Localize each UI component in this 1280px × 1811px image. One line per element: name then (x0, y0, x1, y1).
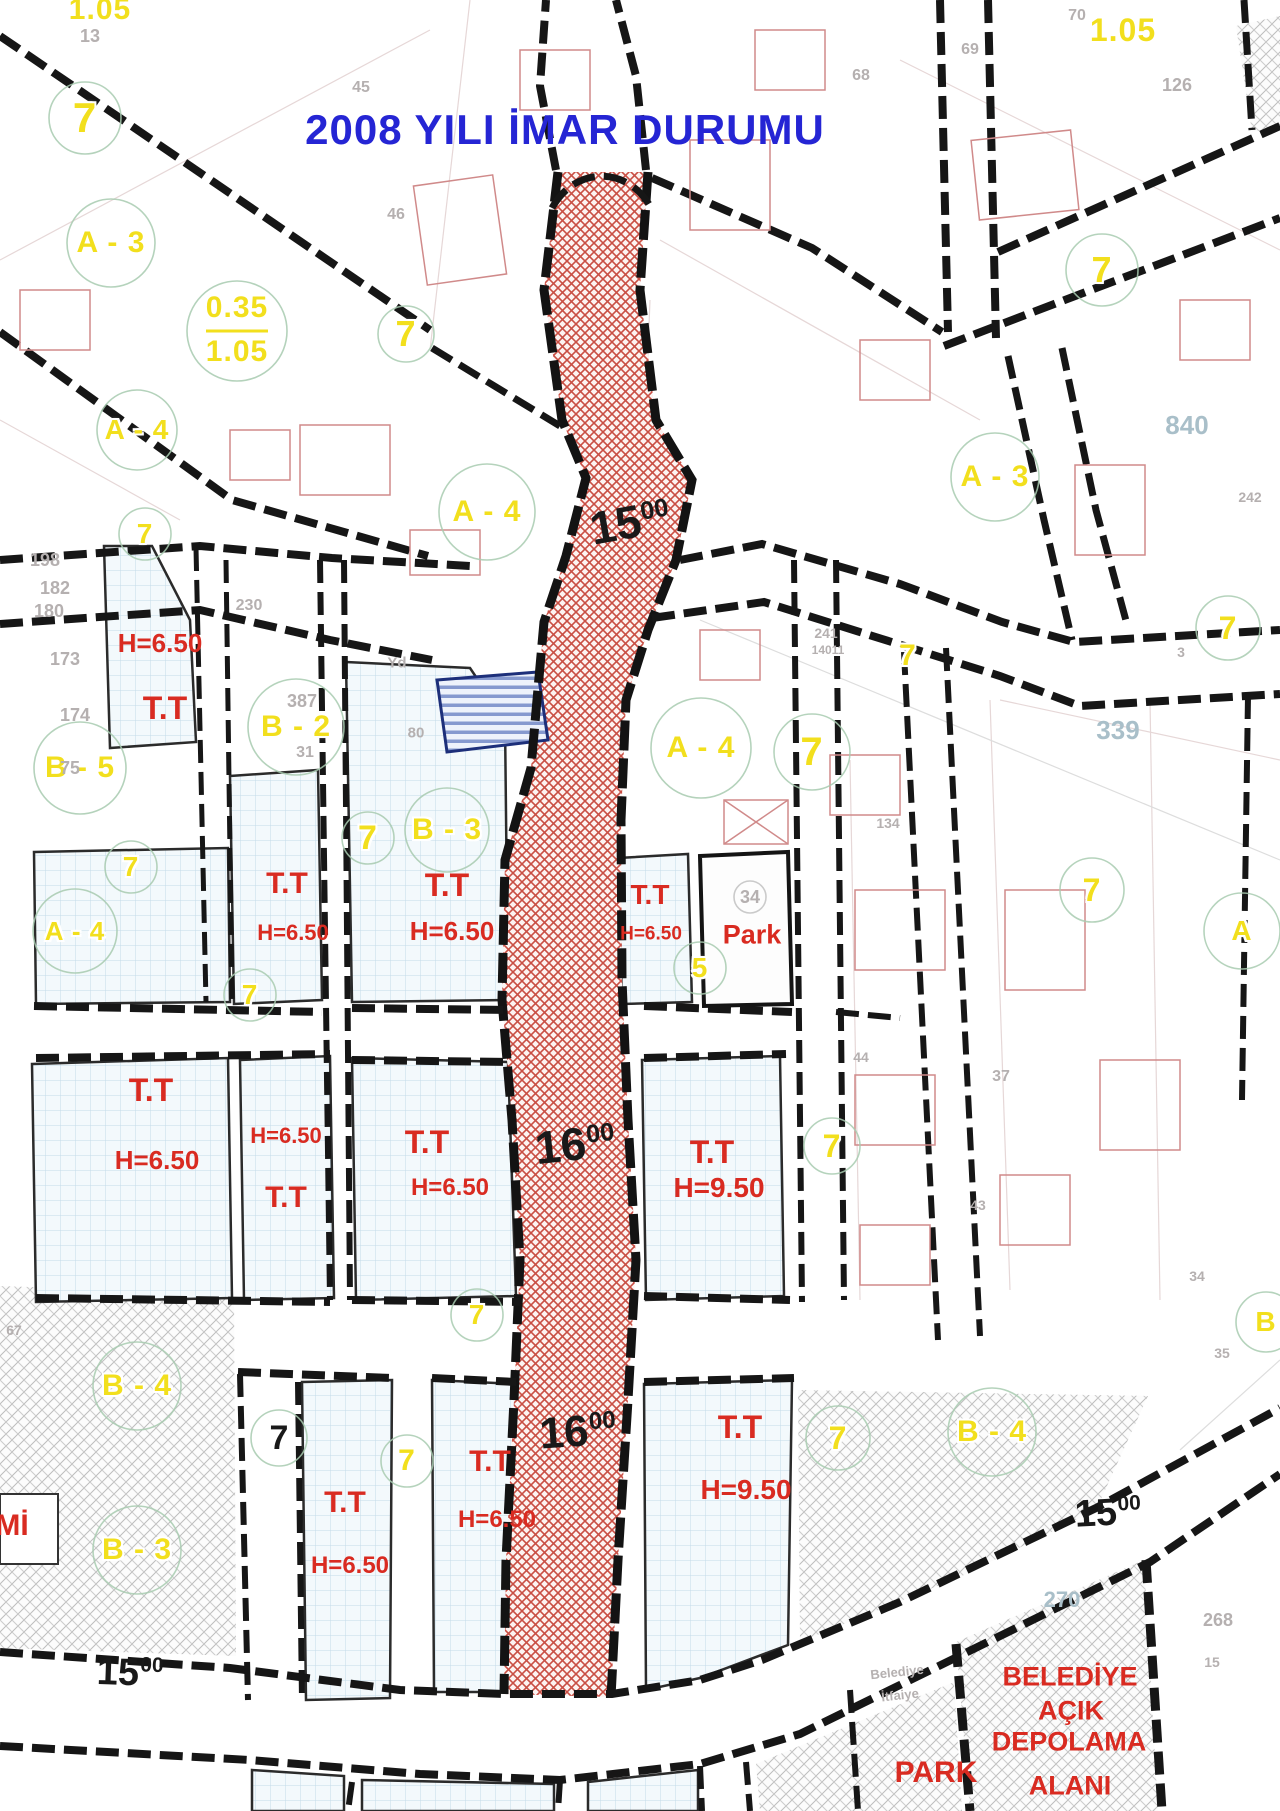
zone-label: 7 (137, 520, 154, 548)
plan-annotation: DEPOLAMA (992, 1729, 1147, 1756)
zone-label: A - 4 (105, 416, 170, 444)
plan-annotation: Mİ (0, 1511, 29, 1541)
plan-annotation: T.T (324, 1488, 366, 1518)
plan-annotation: H=9.50 (700, 1476, 791, 1504)
parcel-number: 242 (1238, 490, 1261, 504)
parcel-number: 180 (34, 602, 64, 620)
plan-annotation: T.T (469, 1447, 511, 1477)
road-width-label: 1500 (1074, 1492, 1142, 1533)
road-width-label: 1600 (533, 1117, 618, 1171)
parcel-number: 80 (408, 726, 425, 741)
plan-annotation: H=6.50 (118, 630, 203, 656)
parcel-number: 126 (1162, 76, 1192, 94)
zone-label: B - 3 (102, 1535, 172, 1565)
parcel-number: 182 (40, 579, 70, 597)
plan-annotation: AÇIK (1038, 1698, 1104, 1725)
plan-annotation: T.T (129, 1074, 173, 1106)
plan-annotation: T.T (265, 1183, 307, 1213)
zoning-map: 2008 YILI İMAR DURUMU 150016001600150015… (0, 0, 1280, 1811)
block-number: 339 (1096, 717, 1139, 743)
zone-label: B - 2 (261, 712, 331, 742)
parcel-number: 37 (992, 1069, 1010, 1085)
zone-label: 0.35 (206, 293, 268, 323)
plan-annotation: T.T (631, 881, 670, 909)
plan-annotation: T.T (718, 1411, 762, 1443)
parcel-number: 44 (853, 1050, 869, 1064)
zone-label: 7 (123, 853, 140, 881)
plan-annotation: Park (723, 922, 782, 949)
parcel-number: 268 (1203, 1611, 1233, 1629)
parcel-number: 387 (287, 692, 317, 710)
block-number: 270 (1044, 1589, 1081, 1611)
parcel-number: 35 (1214, 1346, 1230, 1360)
zone-label: 5 (692, 954, 709, 982)
parcel-number: 241 (814, 626, 837, 640)
plan-annotation: BELEDİYE (1002, 1664, 1137, 1691)
parcel-number: 198 (30, 551, 60, 569)
parcel-number: 34 (740, 888, 760, 906)
block-number: 840 (1165, 412, 1208, 438)
plan-annotation: H=6.50 (410, 918, 495, 944)
plan-annotation: H=9.50 (673, 1174, 764, 1202)
zone-label: 7 (398, 1446, 416, 1476)
zone-label: B - 4 (102, 1371, 172, 1401)
plan-annotation: T.T (690, 1136, 734, 1168)
plan-annotation: H=6.50 (620, 925, 682, 944)
parcel-number: 230 (236, 598, 263, 614)
zone-label: B - 3 (412, 815, 482, 845)
zone-label: 7 (242, 981, 259, 1009)
zone-label: 7 (823, 1130, 842, 1162)
plan-annotation: PARK (895, 1758, 978, 1788)
zone-label: B - 4 (957, 1417, 1027, 1447)
zone-label: 1.05 (69, 0, 131, 25)
road-width-label: 1600 (538, 1407, 618, 1456)
zone-label: A - 3 (77, 228, 146, 258)
plan-annotation: T.T (405, 1126, 449, 1158)
zone-label: 7 (73, 97, 97, 139)
parcel-number: Belediye (870, 1663, 925, 1682)
zone-label: A - 4 (667, 733, 736, 763)
zone-label: 1.05 (206, 337, 268, 367)
parcel-number: 34 (1189, 1269, 1205, 1283)
zone-label: A - 4 (45, 918, 105, 944)
parcel-number: 70 (1068, 8, 1086, 24)
label-layer: 1500160016001500150071.057A - 30.351.057… (0, 0, 1280, 1811)
parcel-number: Yd (387, 656, 406, 671)
parcel-number: 67 (6, 1323, 22, 1337)
parcel-number: 43 (970, 1198, 986, 1212)
zone-label: 7 (829, 1422, 848, 1454)
parcel-number: 75 (60, 759, 80, 777)
parcel-number: İtfaiye (881, 1687, 920, 1704)
zone-label: 7 (395, 316, 416, 352)
plan-annotation: T.T (425, 869, 469, 901)
zone-label: A - 4 (453, 497, 522, 527)
zone-label: 7 (469, 1301, 486, 1329)
parcel-number: 15 (1204, 1655, 1220, 1669)
zone-label: 7 (1083, 874, 1102, 906)
zone-label: 7 (358, 821, 378, 855)
parcel-number: 3 (1177, 645, 1185, 659)
parcel-number: 14011 (812, 644, 845, 656)
road-width-label: 1500 (586, 492, 673, 551)
plan-annotation: H=6.50 (257, 922, 329, 944)
plan-annotation: H=6.50 (311, 1554, 389, 1578)
parcel-number: 68 (852, 68, 870, 84)
plan-annotation: H=6.50 (250, 1125, 322, 1147)
road-width-label: 1500 (96, 1653, 164, 1693)
road-width-label: 7 (270, 1421, 289, 1455)
parcel-number: 173 (50, 650, 80, 668)
plan-annotation: T.T (143, 692, 187, 724)
zone-label: 7 (800, 732, 823, 772)
zone-label: 1.05 (1090, 14, 1156, 46)
zone-label: B (1255, 1308, 1276, 1336)
parcel-number: 134 (876, 816, 899, 830)
plan-annotation: ALANI (1029, 1773, 1112, 1800)
parcel-number: 46 (387, 207, 405, 223)
zone-label: A - 3 (961, 462, 1030, 492)
parcel-number: 13 (80, 27, 100, 45)
plan-annotation: H=6.50 (458, 1508, 536, 1532)
zone-label: 7 (1091, 252, 1112, 288)
plan-annotation: T.T (266, 869, 308, 899)
plan-annotation: H=6.50 (411, 1176, 489, 1200)
zone-label: 7 (1219, 612, 1238, 644)
parcel-number: 45 (352, 80, 370, 96)
parcel-number: 31 (296, 745, 314, 761)
zone-label: A (1231, 917, 1252, 945)
plan-annotation: H=6.50 (115, 1147, 200, 1173)
parcel-number: 174 (60, 706, 90, 724)
parcel-number: 69 (961, 42, 979, 58)
zone-label: 7 (899, 641, 917, 671)
